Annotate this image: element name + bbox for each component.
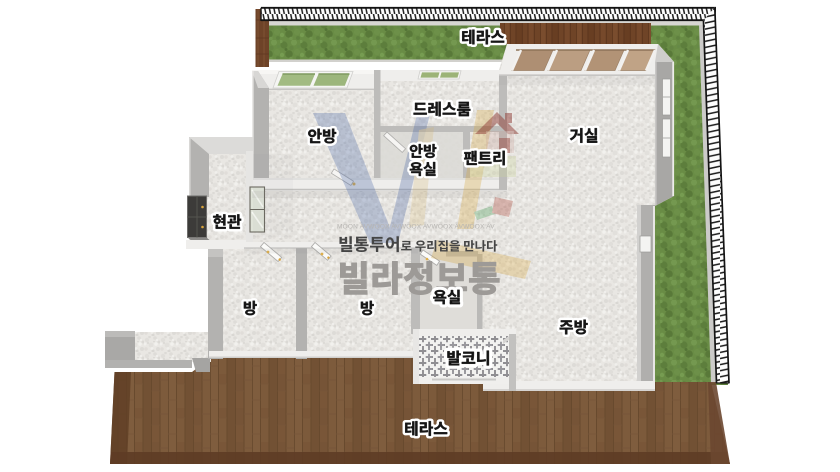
svg-text:MOON AVWOOX AVWOOX AVWOOX AVWO: MOON AVWOOX AVWOOX AVWOOX AVWOOX AV <box>337 224 495 231</box>
